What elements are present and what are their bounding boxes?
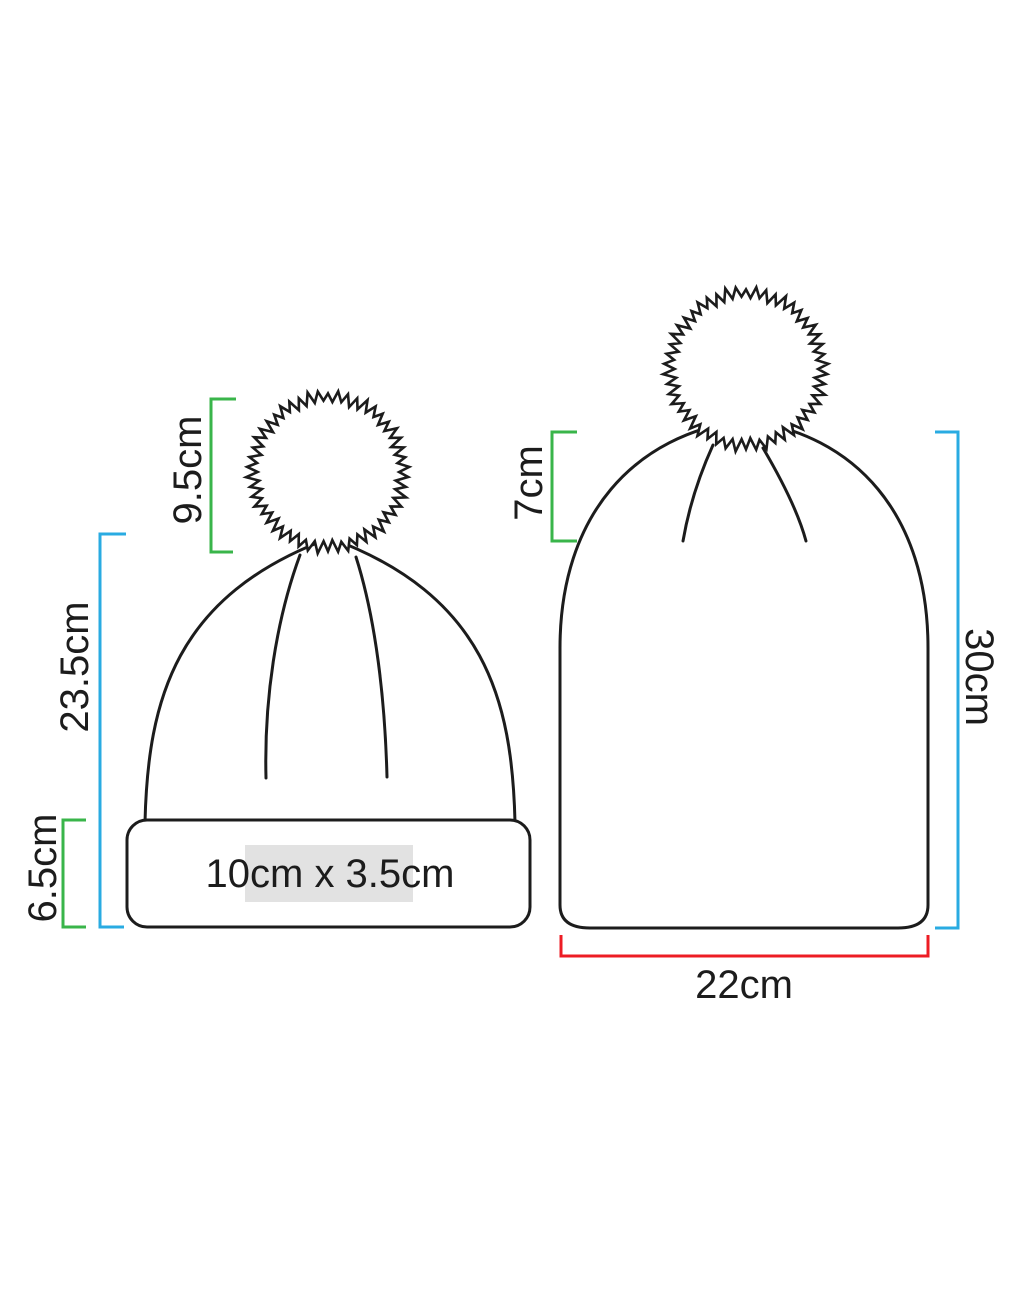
width-bracket — [561, 935, 928, 956]
cuff-height-label: 6.5cm — [21, 814, 65, 923]
pom-height-bracket — [211, 399, 236, 552]
width-label: 22cm — [695, 963, 793, 1007]
crown-depth-bracket — [552, 432, 577, 541]
body-height-label: 23.5cm — [53, 601, 97, 732]
total-height-label: 30cm — [957, 628, 1001, 726]
cuff-height-bracket — [63, 820, 86, 927]
total-height-bracket — [935, 432, 958, 928]
right-beanie-body — [560, 420, 928, 928]
left-beanie-seam-left — [266, 555, 300, 778]
right-beanie — [560, 287, 928, 928]
beanie-size-diagram: 10cm x 3.5cm 9.5cm 23.5cm 6.5cm 7cm 30cm… — [0, 0, 1024, 1304]
left-beanie-pompom-icon — [246, 391, 409, 553]
right-beanie-pompom-icon — [663, 287, 828, 451]
crown-depth-label: 7cm — [507, 445, 551, 521]
print-area-label: 10cm x 3.5cm — [206, 852, 455, 896]
body-height-bracket — [100, 534, 126, 927]
left-beanie-seam-right — [356, 557, 387, 777]
left-beanie-body — [145, 538, 515, 822]
pom-height-label: 9.5cm — [166, 416, 210, 525]
